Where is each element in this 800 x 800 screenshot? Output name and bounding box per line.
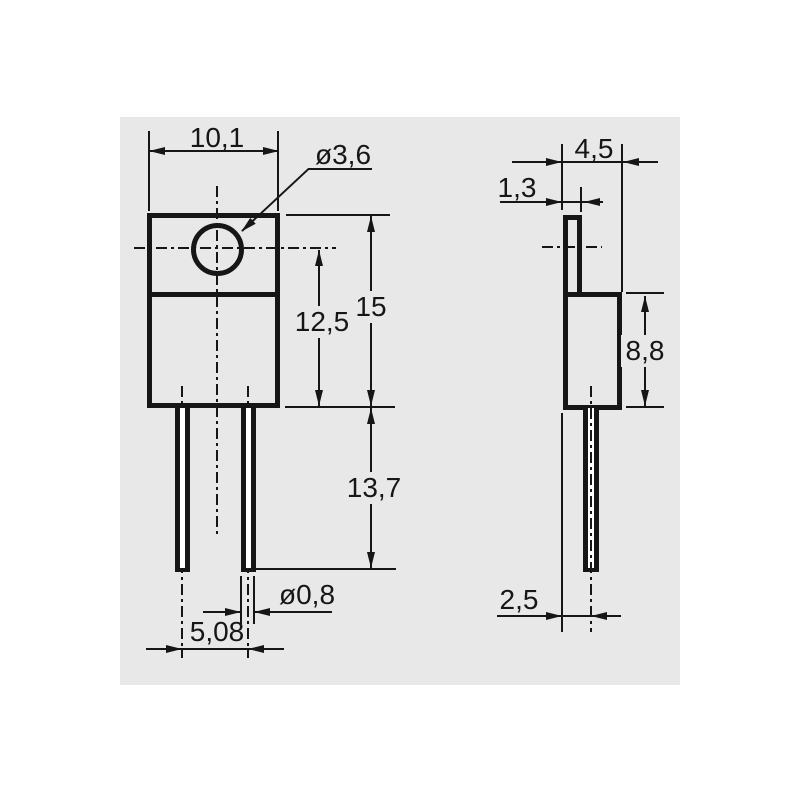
arrowhead-left-icon (584, 198, 600, 206)
arrowhead-right-icon (546, 158, 562, 166)
arrowhead-right-icon (546, 198, 562, 206)
arrowhead-down-icon (367, 552, 375, 568)
hole-horizontal-centerline (134, 247, 336, 249)
arrowhead-left-icon (248, 645, 264, 653)
dim-label-lead-length: 13,7 (340, 472, 408, 504)
extension-line (626, 406, 664, 408)
arrowhead-down-icon (315, 390, 323, 406)
extension-line (626, 292, 664, 294)
arrowhead-left-icon (623, 158, 639, 166)
technical-drawing-canvas: 10,1 ø3,6 15 12,5 13,7 ø0,8 5,08 (0, 0, 800, 800)
dim-label-body-width: 10,1 (162, 123, 272, 153)
dim-label-hole-center: 12,5 (289, 306, 355, 338)
extension-line (580, 187, 582, 212)
extension-line (285, 406, 395, 408)
arrowhead-left-icon (591, 612, 607, 620)
side-horizontal-centerline (542, 246, 602, 248)
front-vertical-centerline (216, 186, 218, 534)
dim-label-lead-offset: 2,5 (489, 585, 549, 615)
arrowhead-right-icon (225, 608, 241, 616)
arrowhead-right-icon (166, 645, 182, 653)
side-body-outline (563, 292, 622, 410)
arrowhead-up-icon (367, 216, 375, 232)
arrowhead-up-icon (641, 296, 649, 312)
dim-label-body-depth: 4,5 (563, 134, 625, 164)
extension-line (148, 131, 150, 211)
dim-label-body-height: 8,8 (621, 335, 669, 367)
front-tab-divider-line (152, 292, 275, 297)
dim-label-tab-thickness: 1,3 (487, 173, 547, 203)
extension-line (561, 413, 563, 632)
arrowhead-up-icon (315, 250, 323, 266)
arrowhead-down-icon (367, 390, 375, 406)
extension-line (251, 568, 396, 570)
leader-underline (308, 168, 372, 170)
side-lead-centerline (590, 386, 592, 632)
dim-label-hole-diameter: ø3,6 (312, 140, 374, 170)
arrowhead-up-icon (367, 408, 375, 424)
extension-line (621, 144, 623, 292)
front-lead-right (241, 408, 256, 572)
arrowhead-down-icon (641, 390, 649, 406)
dim-label-lead-diameter: ø0,8 (276, 580, 338, 610)
dim-label-lead-pitch: 5,08 (186, 617, 248, 647)
front-lead-left (175, 408, 190, 572)
extension-line (253, 576, 255, 624)
side-tab-outline (563, 215, 582, 297)
arrowhead-left-icon (254, 608, 270, 616)
